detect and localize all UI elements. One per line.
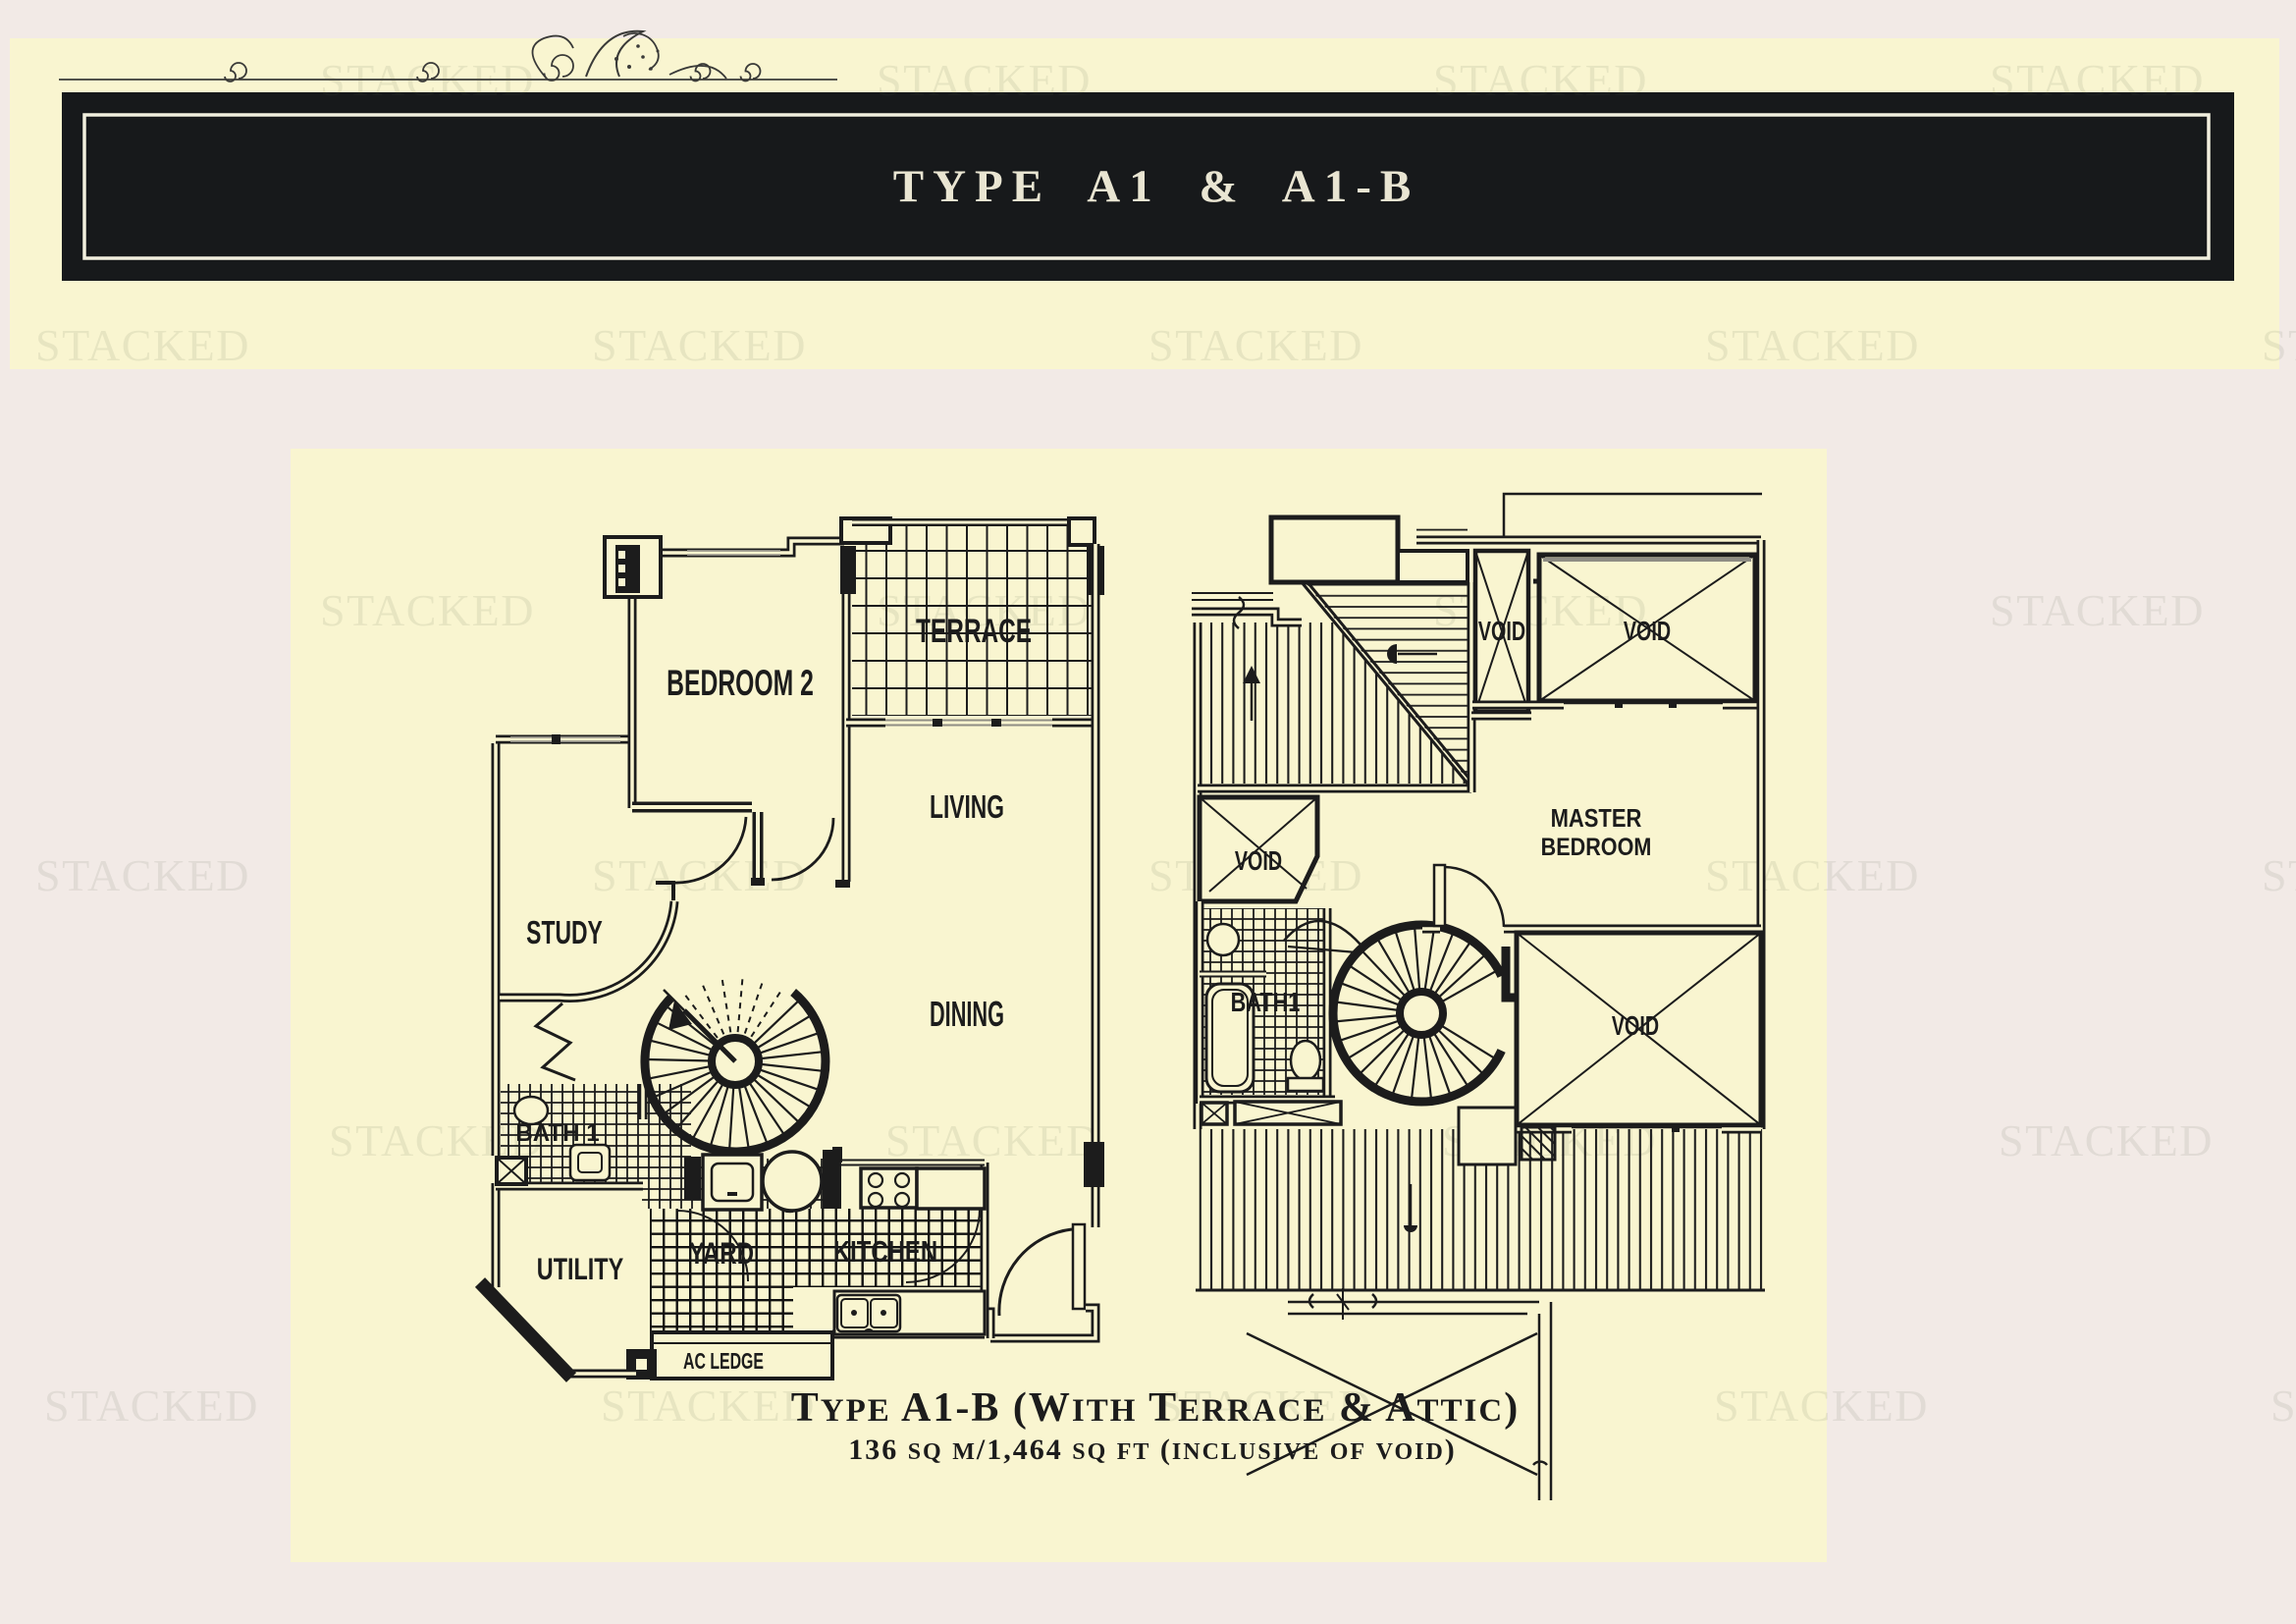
svg-text:STACKED: STACKED (320, 585, 535, 635)
svg-text:STACKED: STACKED (1999, 1115, 2214, 1165)
svg-text:BATH 1: BATH 1 (515, 1120, 599, 1147)
svg-text:LIVING: LIVING (930, 788, 1004, 825)
svg-text:STACKED: STACKED (320, 55, 535, 105)
svg-text:STACKED: STACKED (1148, 320, 1363, 370)
svg-text:STACKED: STACKED (885, 1115, 1100, 1165)
svg-text:STACKED: STACKED (35, 320, 250, 370)
svg-text:VOID: VOID (1478, 617, 1525, 647)
svg-text:STACKED: STACKED (877, 55, 1092, 105)
svg-text:TYPE A1 & A1-B: TYPE A1 & A1-B (893, 161, 1419, 212)
svg-text:MASTER: MASTER (1551, 804, 1642, 833)
svg-text:STACKED: STACKED (601, 1380, 816, 1431)
svg-text:VOID: VOID (1235, 846, 1282, 877)
svg-text:YARD: YARD (689, 1236, 754, 1271)
svg-text:TERRACE: TERRACE (916, 613, 1032, 650)
svg-text:UTILITY: UTILITY (537, 1252, 624, 1286)
svg-text:STACKED: STACKED (2270, 1380, 2296, 1431)
svg-text:VOID: VOID (1624, 617, 1671, 647)
svg-text:STUDY: STUDY (526, 915, 603, 951)
svg-text:STACKED: STACKED (35, 850, 250, 900)
svg-text:STACKED: STACKED (44, 1380, 259, 1431)
svg-text:DINING: DINING (930, 996, 1004, 1035)
svg-text:STACKED: STACKED (592, 320, 807, 370)
svg-text:STACKED: STACKED (2262, 320, 2296, 370)
svg-text:STACKED: STACKED (1714, 1380, 1929, 1431)
svg-text:STACKED: STACKED (1705, 850, 1920, 900)
svg-text:TYPE A1-B (WITH TERRACE & ATTI: TYPE A1-B (WITH TERRACE & ATTIC) (791, 1385, 1520, 1431)
svg-text:KITCHEN: KITCHEN (833, 1234, 937, 1268)
svg-text:AC LEDGE: AC LEDGE (683, 1349, 764, 1375)
svg-text:STACKED: STACKED (2262, 850, 2296, 900)
svg-text:STACKED: STACKED (1433, 55, 1648, 105)
svg-text:VOID: VOID (1612, 1011, 1659, 1042)
svg-text:STACKED: STACKED (592, 850, 807, 900)
svg-text:BEDROOM 2: BEDROOM 2 (667, 663, 814, 703)
svg-text:STACKED: STACKED (1705, 320, 1920, 370)
svg-text:STACKED: STACKED (1990, 55, 2205, 105)
svg-text:BATH1: BATH1 (1231, 989, 1301, 1018)
svg-text:STACKED: STACKED (1990, 585, 2205, 635)
svg-text:BEDROOM: BEDROOM (1541, 834, 1652, 861)
